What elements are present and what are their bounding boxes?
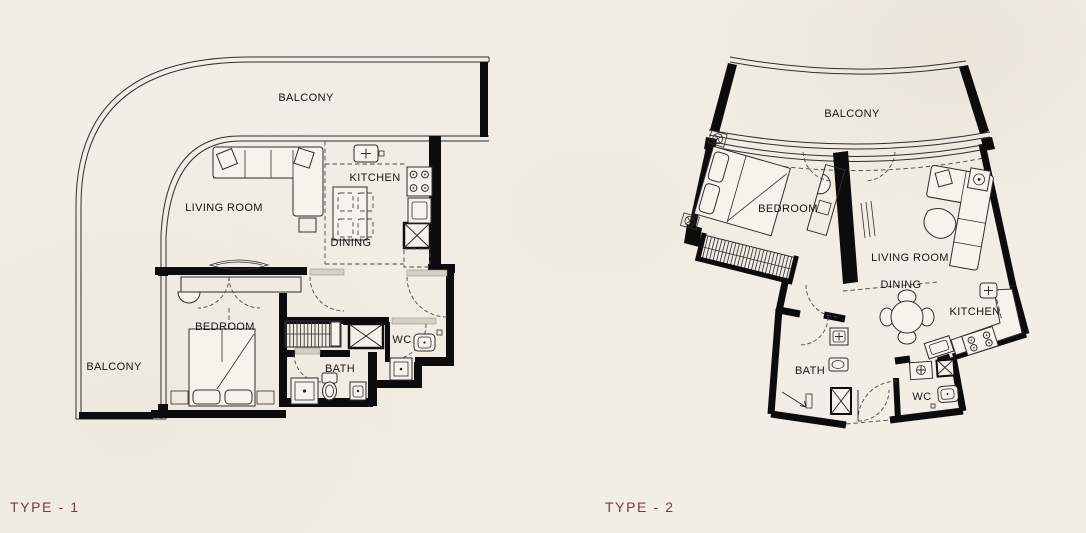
type2-wardrobe (695, 232, 799, 284)
coffee-table-icon (921, 206, 958, 241)
toilet-icon (829, 358, 848, 371)
floor-plan-type-1: BALCONY LIVING ROOM KITCHEN DINING BALCO… (10, 57, 489, 515)
pillow-icon (225, 390, 252, 404)
nightstand-icon (257, 391, 274, 404)
type2-wc-label: WC (912, 391, 931, 403)
type2-title: TYPE - 2 (605, 499, 675, 515)
type2-bath-label: BATH (795, 365, 825, 377)
toilet-icon (322, 373, 337, 400)
type1-dining-set (333, 187, 373, 240)
type1-balcony-side-label: BALCONY (86, 361, 142, 373)
type1-shaft-kitchen (404, 223, 430, 267)
shaft-icon (936, 359, 954, 376)
coffee-table-icon (299, 218, 316, 232)
desk-icon (181, 277, 301, 292)
stove-icon (407, 167, 432, 196)
type2-living-room-label: LIVING ROOM (871, 252, 949, 264)
type1-balcony-top-label: BALCONY (278, 92, 334, 104)
washbasin-icon (909, 361, 932, 379)
shaft-icon (831, 388, 851, 414)
type1-wardrobe (285, 321, 341, 347)
dining-table-icon (891, 301, 923, 333)
sofa-pillow-icon (935, 170, 952, 187)
type1-shaft-hall (349, 324, 383, 348)
type2-dining-set (843, 282, 938, 344)
type2-dining-label: DINING (881, 279, 922, 291)
type1-bath-label: BATH (325, 363, 355, 375)
type2-kitchen-fixtures (924, 283, 1022, 359)
floor-plans-drawing: BALCONY LIVING ROOM KITCHEN DINING BALCO… (0, 0, 1086, 533)
type1-kitchen-label: KITCHEN (349, 172, 400, 184)
type1-bedroom-label: BEDROOM (195, 321, 255, 333)
type2-balcony-outline (709, 57, 990, 149)
type1-title: TYPE - 1 (10, 499, 80, 515)
type2-balcony-label: BALCONY (824, 108, 880, 120)
floor-plan-sheet: BALCONY LIVING ROOM KITCHEN DINING BALCO… (0, 0, 1086, 533)
toilet-icon (937, 385, 958, 403)
type2-bedroom-label: BEDROOM (758, 203, 818, 215)
type1-bath-fixtures (291, 373, 366, 404)
type1-living-room-label: LIVING ROOM (185, 202, 263, 214)
toilet-icon (414, 330, 442, 351)
nightstand-icon (171, 391, 188, 404)
floor-plan-type-2: BALCONY BEDROOM LIVING ROOM DINING KITCH… (605, 57, 1026, 515)
type2-kitchen-label: KITCHEN (949, 306, 1000, 318)
type1-dining-label: DINING (331, 237, 372, 249)
stove-icon (962, 327, 999, 356)
tv-unit-icon (861, 201, 875, 238)
side-table-lamp-icon (967, 168, 990, 191)
shower-arrow-icon (782, 392, 806, 407)
type1-sofa (213, 147, 323, 232)
pillow-icon (193, 390, 220, 404)
chair-icon (178, 292, 200, 303)
type1-wc-label: WC (392, 334, 411, 346)
